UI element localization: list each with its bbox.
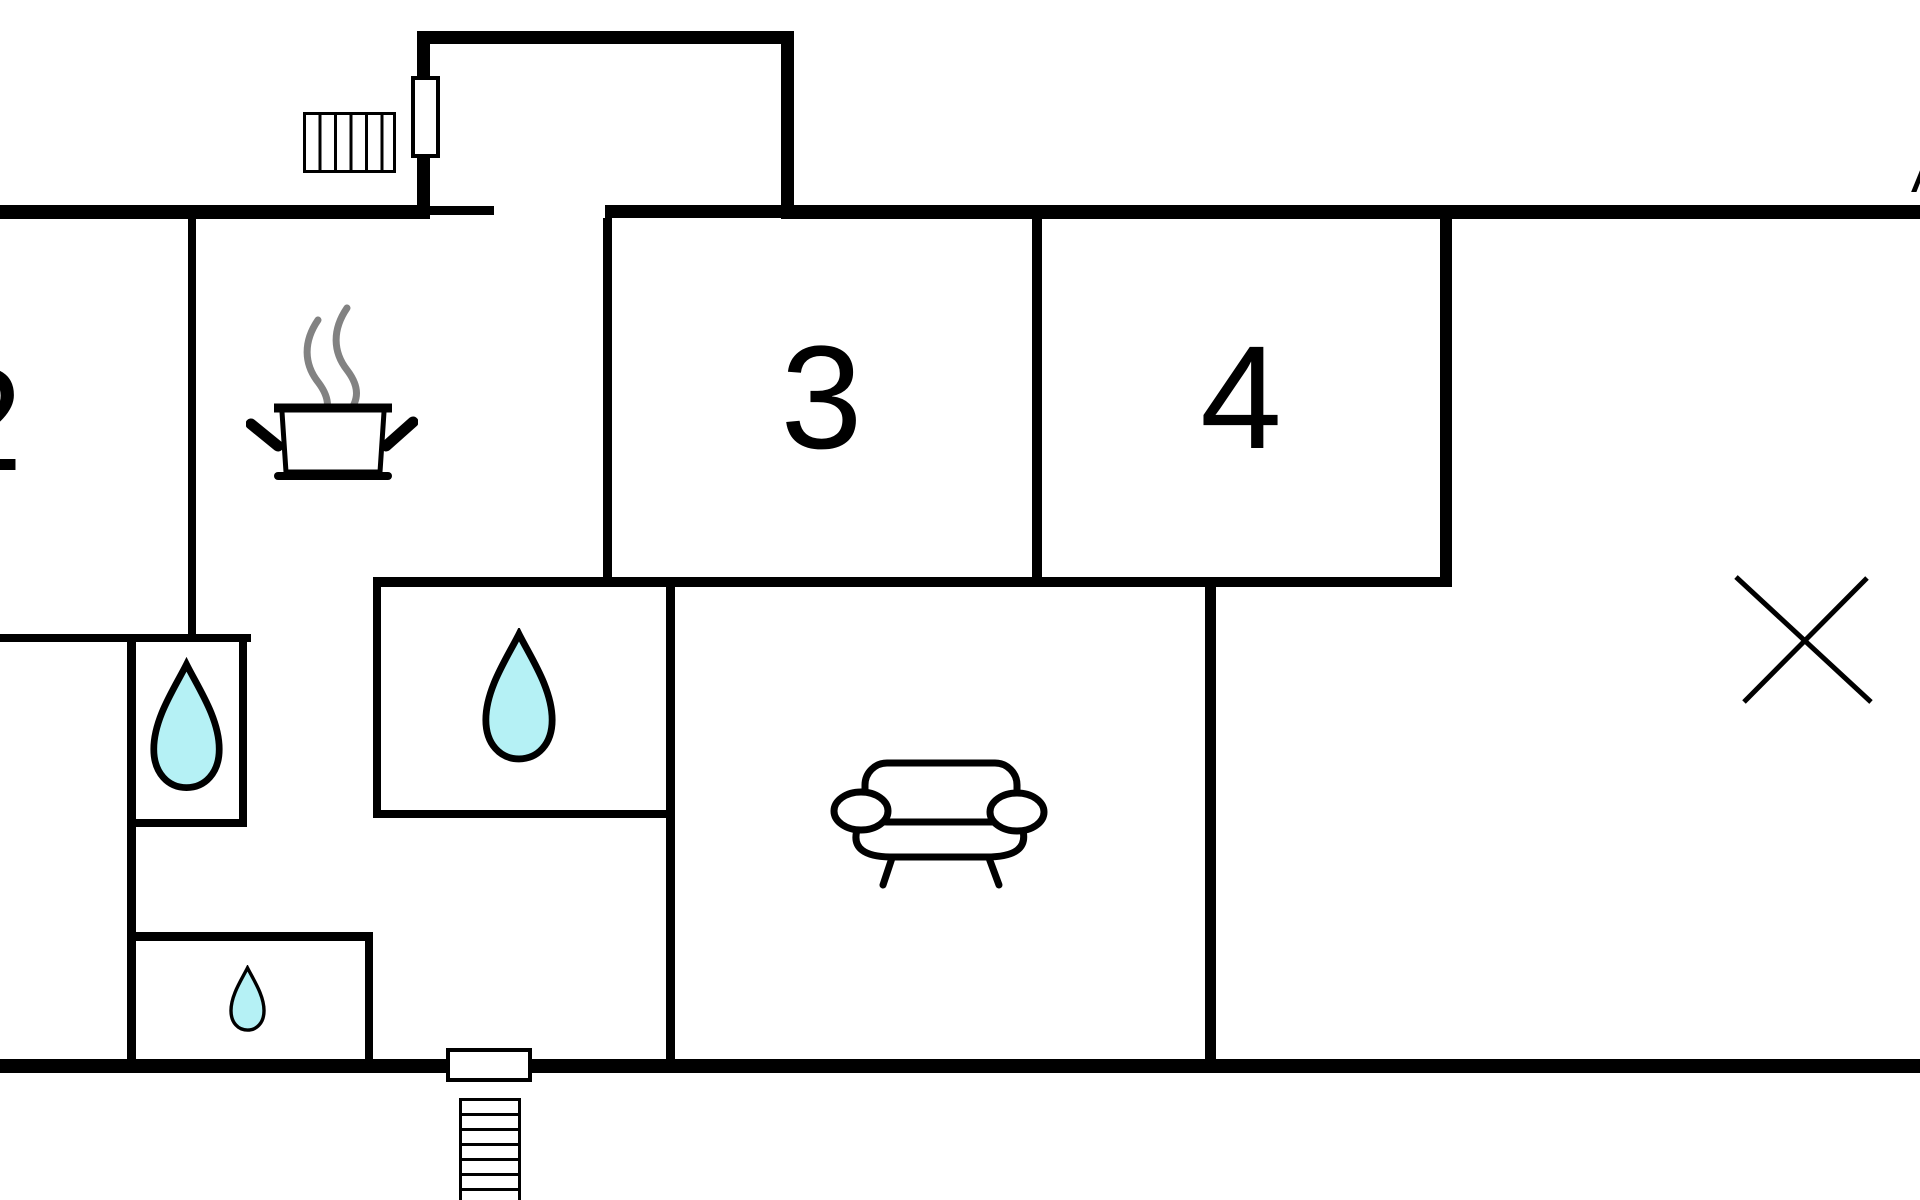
wall-top-left	[0, 205, 430, 219]
steam-right-icon	[336, 308, 356, 414]
wall-mid-horizontal	[373, 577, 1452, 587]
entrance-door-bottom-icon	[446, 1048, 532, 1082]
room4-number: 4	[1200, 314, 1282, 483]
room3-number: 3	[781, 314, 863, 483]
sofa-leg-left	[883, 858, 892, 885]
wall-wc1-right	[239, 634, 247, 827]
entrance-steps-bottom-icon	[459, 1098, 521, 1200]
wall-closet-top	[0, 634, 251, 642]
entrance-door-top-icon	[411, 76, 440, 158]
room3-label: 3	[611, 219, 1032, 577]
wall-room4-right	[1440, 218, 1452, 577]
wall-wc1-left	[127, 634, 136, 1059]
sofa-armrest-right	[990, 793, 1044, 831]
wall-bathroom-bottom	[373, 810, 675, 818]
room2-label: 2	[0, 347, 60, 494]
wall-porch-top	[417, 31, 794, 44]
room4-label: 4	[1042, 219, 1440, 577]
sofa-icon	[826, 755, 1056, 890]
wall-bottom	[0, 1059, 1920, 1073]
wall-kitchen-divider	[188, 219, 196, 634]
x-mark-icon	[1730, 570, 1878, 710]
wall-bathroom-left	[373, 582, 381, 818]
water-drop-shape	[231, 968, 264, 1030]
water-drop-shape	[486, 634, 552, 759]
wall-top-stub	[430, 206, 494, 215]
wall-wc2-top	[127, 932, 373, 941]
water-drop-small-icon	[227, 965, 268, 1033]
wall-porch-right	[781, 31, 794, 219]
sofa-armrest-left	[834, 792, 888, 830]
sofa-leg-right	[989, 858, 999, 885]
room2-number: 2	[0, 336, 23, 505]
water-drop-icon	[148, 657, 225, 795]
wall-top-right	[794, 205, 1920, 219]
pot-handle-left	[251, 424, 278, 446]
wall-wc2-right	[365, 932, 373, 1059]
sofa-seat	[856, 827, 1024, 857]
wall-wc1-bottom	[127, 819, 247, 827]
water-drop-icon	[480, 628, 558, 765]
wall-room3-room4-divider	[1032, 218, 1042, 577]
pot-handle-right	[386, 422, 413, 446]
entrance-steps-top-icon	[303, 112, 396, 173]
cooking-pot-icon	[246, 300, 418, 492]
wall-living-left	[666, 587, 675, 1059]
wall-top-mid	[605, 205, 781, 218]
pot-body	[282, 412, 384, 472]
wall-living-right	[1205, 587, 1216, 1059]
floor-plan-page: { "title": "apartment-floor-plan", "colo…	[0, 0, 1920, 1200]
corner-letter-label: A	[1911, 146, 1920, 201]
water-drop-shape	[154, 664, 219, 787]
